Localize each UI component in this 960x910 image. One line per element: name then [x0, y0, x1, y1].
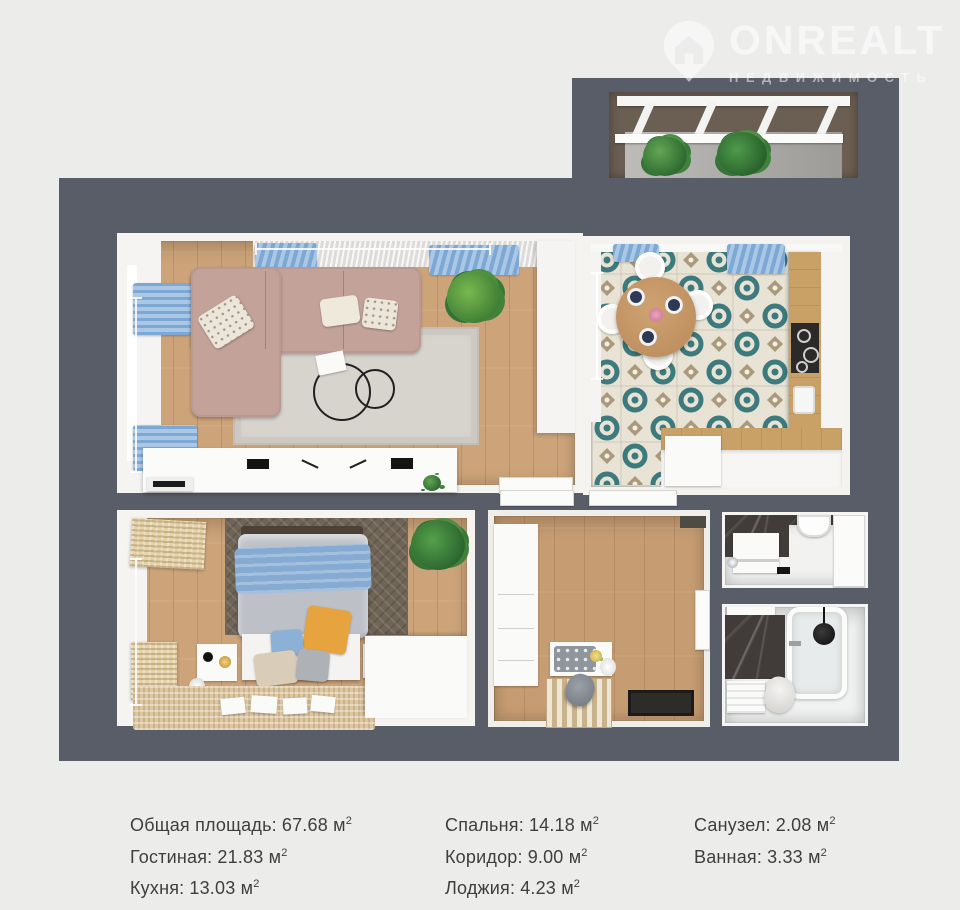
pillow-orange — [302, 605, 352, 655]
area-value: 3.33 м — [767, 847, 821, 867]
rug-papers — [250, 695, 277, 714]
stove-burner — [797, 329, 811, 343]
bathroom-door — [695, 590, 710, 650]
bed-blue-throw — [234, 544, 372, 595]
cabinet-shelf-line — [498, 628, 534, 629]
area-living: Гостиная:21.83 м2 — [130, 840, 352, 872]
living-curtain-top-left — [255, 243, 317, 269]
round-mirror — [813, 623, 835, 645]
dimension-line-living-top — [255, 248, 491, 250]
area-sup: 2 — [829, 815, 835, 827]
bench-flowers — [590, 650, 602, 662]
place-setting — [627, 288, 645, 306]
toilet-counter-dark — [777, 567, 790, 574]
area-sup: 2 — [346, 815, 352, 827]
place-setting — [639, 328, 657, 346]
floorplan-page: { "logo": { "title": "ONREALT", "subtitl… — [0, 0, 960, 910]
area-label: Коридор: — [445, 847, 523, 867]
loggia-window-mullion — [693, 102, 717, 136]
pillow-gray — [296, 649, 331, 683]
area-bathroom: Ванная:3.33 м2 — [694, 840, 836, 872]
cabinet-shelf-line — [498, 594, 534, 595]
kitchen-corridor-door — [589, 490, 677, 506]
legend-column-2: Спальня:14.18 м2 Коридор:9.00 м2 Лоджия:… — [445, 808, 599, 903]
logo-subtitle: НЕДВИЖИМОСТЬ — [729, 70, 945, 85]
loggia-window-mullion — [631, 102, 655, 136]
area-toilet: Санузел:2.08 м2 — [694, 808, 836, 840]
logo-text-block: ONREALT НЕДВИЖИМОСТЬ — [729, 20, 945, 85]
sink-edge — [733, 559, 779, 562]
area-corridor: Коридор:9.00 м2 — [445, 840, 599, 872]
coffee-table-small — [355, 369, 395, 409]
living-room — [117, 233, 583, 493]
area-sup: 2 — [821, 847, 827, 859]
entrance-doormat — [628, 690, 694, 716]
sofa-pillow-white — [319, 294, 361, 327]
loggia-window-mullion — [755, 102, 779, 136]
onrealt-logo: ONREALT НЕДВИЖИМОСТЬ — [663, 20, 945, 96]
area-sup: 2 — [574, 878, 580, 890]
rug-papers — [310, 695, 336, 713]
area-label: Общая площадь: — [130, 815, 277, 835]
toilet-sink-cabinet — [733, 533, 779, 573]
bench-cushion — [554, 646, 596, 672]
area-bedroom: Спальня:14.18 м2 — [445, 808, 599, 840]
toilet-bowl — [797, 515, 831, 537]
living-plant — [447, 271, 501, 323]
area-value: 4.23 м — [520, 878, 574, 898]
nightstand-left — [197, 644, 237, 681]
area-value: 14.18 м — [529, 815, 593, 835]
table-flowers — [649, 308, 663, 322]
nightstand-lamp — [203, 652, 213, 662]
area-value: 67.68 м — [282, 815, 346, 835]
loggia-window-mullion — [815, 102, 839, 136]
bathroom-shelf — [727, 607, 775, 615]
area-label: Ванная: — [694, 847, 762, 867]
area-value: 2.08 м — [776, 815, 830, 835]
bathtub-faucet — [789, 641, 801, 646]
bedroom — [117, 510, 475, 726]
sink-faucet — [727, 557, 738, 568]
rug-papers — [220, 697, 246, 715]
bath-bench — [727, 681, 765, 713]
area-label: Гостиная: — [130, 847, 212, 867]
bedroom-wardrobe — [365, 636, 467, 718]
area-label: Санузел: — [694, 815, 771, 835]
bedroom-curtain-top — [130, 518, 206, 570]
dimension-line-living-left — [135, 297, 137, 473]
loggia-plant — [717, 132, 767, 176]
corridor — [488, 510, 710, 727]
legend-column-3: Санузел:2.08 м2 Ванная:3.33 м2 — [694, 808, 836, 871]
toilet-door-leaf — [833, 515, 865, 587]
console-books — [153, 481, 185, 487]
pillow-beige — [253, 650, 299, 688]
legend-column-1: Общая площадь:67.68 м2 Гостиная:21.83 м2… — [130, 808, 352, 903]
area-label: Спальня: — [445, 815, 524, 835]
area-value: 13.03 м — [189, 878, 253, 898]
area-label: Лоджия: — [445, 878, 515, 898]
living-curtain-left-top — [133, 283, 191, 335]
tv-unit — [247, 459, 269, 469]
place-setting — [665, 296, 683, 314]
loggia-room — [609, 92, 858, 178]
kitchen-island-cabinet — [665, 436, 721, 486]
sofa-seam — [265, 271, 266, 349]
kitchen-sink — [793, 386, 815, 414]
dimension-line-bedroom — [135, 558, 137, 706]
area-sup: 2 — [281, 847, 287, 859]
area-sup: 2 — [593, 815, 599, 827]
area-label: Кухня: — [130, 878, 184, 898]
area-total: Общая площадь:67.68 м2 — [130, 808, 352, 840]
area-value: 21.83 м — [217, 847, 281, 867]
stove-burner — [803, 347, 819, 363]
logo-title: ONREALT — [729, 20, 945, 61]
kitchen-door-threshold — [680, 516, 706, 528]
kitchen-right-wall-strip — [821, 252, 842, 432]
gas-stove — [791, 323, 819, 373]
area-kitchen: Кухня:13.03 м2 — [130, 871, 352, 903]
loggia-plant — [643, 136, 687, 176]
bathtub — [787, 607, 847, 699]
corridor-cabinet-left — [494, 524, 538, 686]
sofa-pillow-pattern — [361, 297, 398, 331]
console-speaker — [391, 458, 413, 469]
kitchen — [583, 236, 850, 495]
area-sup: 2 — [253, 878, 259, 890]
area-loggia: Лоджия:4.23 м2 — [445, 871, 599, 903]
console-plant — [423, 475, 441, 491]
nightstand-lamp-gold — [219, 656, 231, 668]
decor-vase — [600, 658, 616, 676]
toilet-room — [722, 512, 868, 588]
living-corridor-door — [500, 490, 574, 506]
logo-house-pin-icon — [663, 20, 715, 96]
bedroom-plant — [411, 520, 465, 570]
living-tall-cabinet — [537, 241, 575, 433]
bathroom-marble-wall — [725, 615, 785, 679]
area-sup: 2 — [581, 847, 587, 859]
area-value: 9.00 м — [528, 847, 582, 867]
sofa-chaise — [191, 267, 281, 417]
bathroom — [722, 604, 868, 726]
kitchen-curtain-right — [727, 244, 785, 274]
rug-papers — [283, 697, 308, 714]
stove-burner — [796, 361, 808, 373]
cabinet-shelf-line — [498, 660, 534, 661]
dimension-line-kitchen — [596, 272, 598, 380]
